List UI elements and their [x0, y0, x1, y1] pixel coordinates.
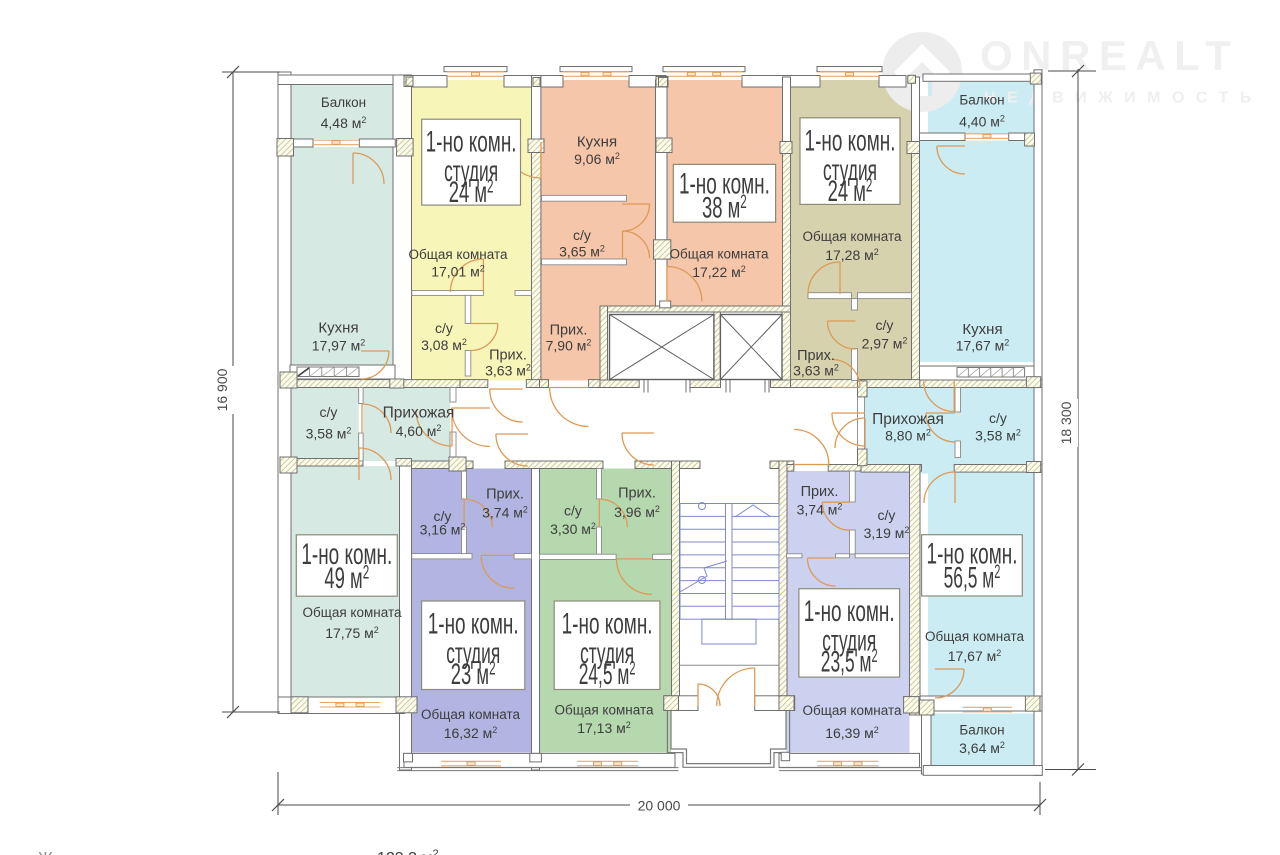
svg-text:1-но комн.: 1-но комн.	[562, 607, 653, 640]
svg-text:Общая комната: Общая комната	[555, 703, 654, 718]
svg-text:49 м2: 49 м2	[324, 561, 369, 595]
svg-text:3,96 м2: 3,96 м2	[614, 504, 660, 520]
svg-text:1-но комн.: 1-но комн.	[804, 595, 895, 628]
svg-text:4,48 м2: 4,48 м2	[321, 115, 367, 131]
svg-text:17,97 м2: 17,97 м2	[312, 338, 366, 354]
svg-text:3,30 м2: 3,30 м2	[550, 521, 596, 537]
svg-text:Прихожая: Прихожая	[872, 411, 944, 428]
svg-text:ONREALT: ONREALT	[980, 32, 1239, 79]
svg-text:17,22 м2: 17,22 м2	[692, 264, 746, 280]
svg-text:с/у: с/у	[564, 503, 582, 519]
svg-text:Кухня: Кухня	[318, 320, 358, 337]
svg-text:НЕДВИЖИМОСТЬ: НЕДВИЖИМОСТЬ	[984, 90, 1263, 107]
svg-text:Общая комната: Общая комната	[409, 247, 508, 262]
svg-text:24,5 м2: 24,5 м2	[579, 658, 636, 691]
svg-text:с/у: с/у	[573, 227, 591, 243]
svg-text:7,90 м2: 7,90 м2	[546, 338, 592, 354]
svg-text:Общая комната: Общая комната	[803, 703, 902, 718]
svg-text:16,39 м2: 16,39 м2	[825, 725, 879, 741]
svg-text:Прих.: Прих.	[618, 486, 656, 502]
svg-text:с/у: с/у	[989, 410, 1007, 426]
svg-text:9,06 м2: 9,06 м2	[574, 151, 620, 167]
svg-text:Балкон: Балкон	[959, 93, 1004, 108]
svg-text:23 м2: 23 м2	[451, 657, 496, 691]
svg-text:с/у: с/у	[435, 320, 453, 336]
svg-text:Кухня: Кухня	[577, 134, 617, 151]
svg-text:Прих.: Прих.	[550, 323, 588, 339]
svg-text:3,74 м2: 3,74 м2	[482, 505, 528, 521]
svg-text:Общая комната: Общая комната	[803, 229, 902, 244]
svg-text:1-но комн.: 1-но комн.	[428, 607, 519, 640]
svg-text:Прихожая: Прихожая	[383, 405, 455, 422]
svg-text:24 м2: 24 м2	[449, 176, 494, 210]
svg-text:4,40 м2: 4,40 м2	[959, 114, 1005, 130]
svg-text:3,64 м2: 3,64 м2	[959, 740, 1005, 756]
svg-text:Балкон: Балкон	[321, 95, 366, 110]
svg-text:Балкон: Балкон	[959, 723, 1004, 738]
svg-text:17,13 м2: 17,13 м2	[577, 720, 631, 736]
svg-text:16 900: 16 900	[214, 368, 230, 411]
svg-text:1-но комн.: 1-но комн.	[426, 125, 517, 158]
svg-text:3,63 м2: 3,63 м2	[485, 363, 531, 379]
svg-text:23,5 м2: 23,5 м2	[821, 646, 878, 679]
svg-text:123,3 м2: 123,3 м2	[377, 848, 439, 855]
svg-text:Кухня: Кухня	[962, 321, 1002, 338]
svg-text:3,65 м2: 3,65 м2	[559, 244, 605, 260]
svg-text:3,08 м2: 3,08 м2	[421, 337, 467, 353]
svg-text:17,28 м2: 17,28 м2	[825, 247, 879, 263]
svg-text:18 300: 18 300	[1058, 401, 1074, 444]
svg-text:Ж: Ж	[38, 850, 53, 855]
svg-text:с/у: с/у	[878, 507, 896, 523]
svg-text:56,5 м2: 56,5 м2	[944, 562, 1001, 595]
svg-text:3,63 м2: 3,63 м2	[793, 363, 839, 379]
svg-text:3,74 м2: 3,74 м2	[797, 502, 843, 518]
svg-text:Общая комната: Общая комната	[303, 605, 402, 620]
svg-text:3,19 м2: 3,19 м2	[864, 525, 910, 541]
svg-text:17,75 м2: 17,75 м2	[325, 625, 379, 641]
svg-text:17,01 м2: 17,01 м2	[431, 264, 485, 280]
svg-text:Прих.: Прих.	[486, 487, 524, 503]
svg-text:4,60 м2: 4,60 м2	[396, 423, 442, 439]
svg-text:3,58 м2: 3,58 м2	[306, 426, 352, 442]
svg-text:24 м2: 24 м2	[828, 174, 873, 208]
svg-text:Общая комната: Общая комната	[925, 629, 1024, 644]
svg-text:16,32 м2: 16,32 м2	[444, 725, 498, 741]
svg-text:Прих.: Прих.	[801, 484, 839, 500]
svg-text:17,67 м2: 17,67 м2	[956, 338, 1010, 354]
svg-text:Общая комната: Общая комната	[421, 707, 520, 722]
svg-text:3,58 м2: 3,58 м2	[975, 428, 1021, 444]
svg-text:2,97 м2: 2,97 м2	[862, 336, 908, 352]
svg-text:с/у: с/у	[876, 317, 894, 333]
svg-text:20 000: 20 000	[638, 798, 681, 814]
svg-text:17,67 м2: 17,67 м2	[948, 648, 1002, 664]
svg-text:38 м2: 38 м2	[702, 191, 747, 225]
svg-text:8,80 м2: 8,80 м2	[885, 428, 931, 444]
svg-text:Прих.: Прих.	[489, 348, 527, 364]
svg-text:с/у: с/у	[320, 404, 338, 420]
svg-text:3,16 м2: 3,16 м2	[420, 522, 466, 538]
svg-text:1-но комн.: 1-но комн.	[805, 124, 896, 157]
svg-text:Общая комната: Общая комната	[670, 247, 769, 262]
